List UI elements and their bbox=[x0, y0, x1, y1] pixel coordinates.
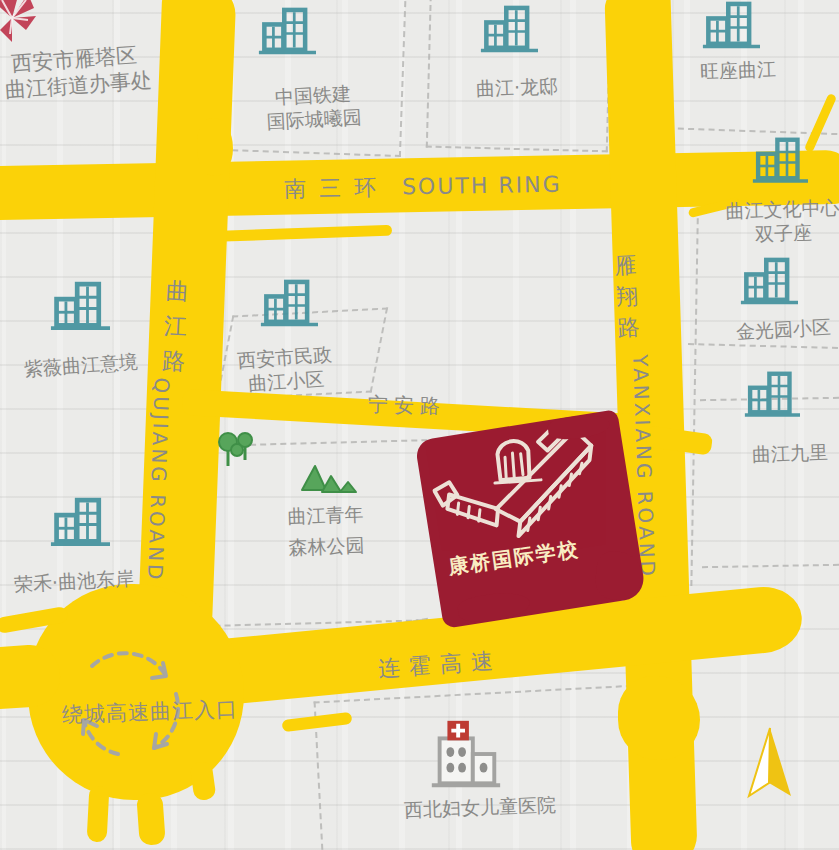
place-label-jinguang: 金光园小区 bbox=[735, 316, 831, 345]
place-label-wenhua: 曲江文化中心 双子座 bbox=[725, 196, 839, 247]
building-icon bbox=[744, 370, 800, 423]
building-icon bbox=[480, 4, 538, 59]
place-label-jiuli: 曲江九里 bbox=[752, 441, 829, 467]
road-yanxiang-brush-blob bbox=[618, 676, 700, 760]
building-icon bbox=[260, 278, 318, 333]
road-qujiang-brush-blob bbox=[197, 118, 233, 176]
place-label-ziwei: 紫薇曲江意境 bbox=[23, 350, 138, 382]
road-label-south-ring: 南三环 SOUTH RING bbox=[284, 170, 562, 205]
building-icon bbox=[50, 280, 110, 337]
road-label-south-ring-en: SOUTH RING bbox=[402, 172, 562, 200]
building-icon bbox=[702, 0, 760, 55]
place-label-minzheng: 西安市民政 曲江小区 bbox=[236, 343, 334, 397]
building-icon bbox=[740, 256, 798, 311]
building-icon bbox=[752, 136, 808, 189]
building-icon bbox=[258, 6, 316, 61]
roundabout-drip bbox=[87, 786, 110, 843]
place-label-street-office: 西安市雁塔区 曲江街道办事处 bbox=[10, 41, 152, 103]
hand-drawn-location-map: 南三环 SOUTH RING 曲 江 路 QUJIANG ROAND 雁 翔 路… bbox=[0, 0, 839, 850]
trees-icon bbox=[216, 430, 260, 472]
hospital-icon bbox=[424, 718, 506, 792]
road-south-ring-brush-streak bbox=[202, 225, 392, 243]
block-outline bbox=[690, 168, 699, 586]
place-label-tiejian: 中国铁建 国际城曦园 bbox=[265, 82, 362, 134]
compass-north-arrow-icon bbox=[744, 724, 796, 802]
building-icon bbox=[50, 496, 110, 553]
place-label-wangzuo: 旺座曲江 bbox=[700, 58, 777, 84]
place-label-longdi: 曲江·龙邸 bbox=[476, 75, 559, 102]
flower-decoration-icon bbox=[0, 0, 40, 46]
road-label-ningan: 宁安路 bbox=[368, 391, 447, 420]
road-label-south-ring-cn: 南三环 bbox=[284, 175, 389, 202]
mountains-icon bbox=[298, 458, 360, 496]
block-outline bbox=[688, 343, 838, 349]
roundabout-drip bbox=[136, 792, 166, 846]
place-label-forest-park: 曲江青年 森林公园 bbox=[287, 499, 365, 564]
block-outline bbox=[702, 564, 839, 568]
